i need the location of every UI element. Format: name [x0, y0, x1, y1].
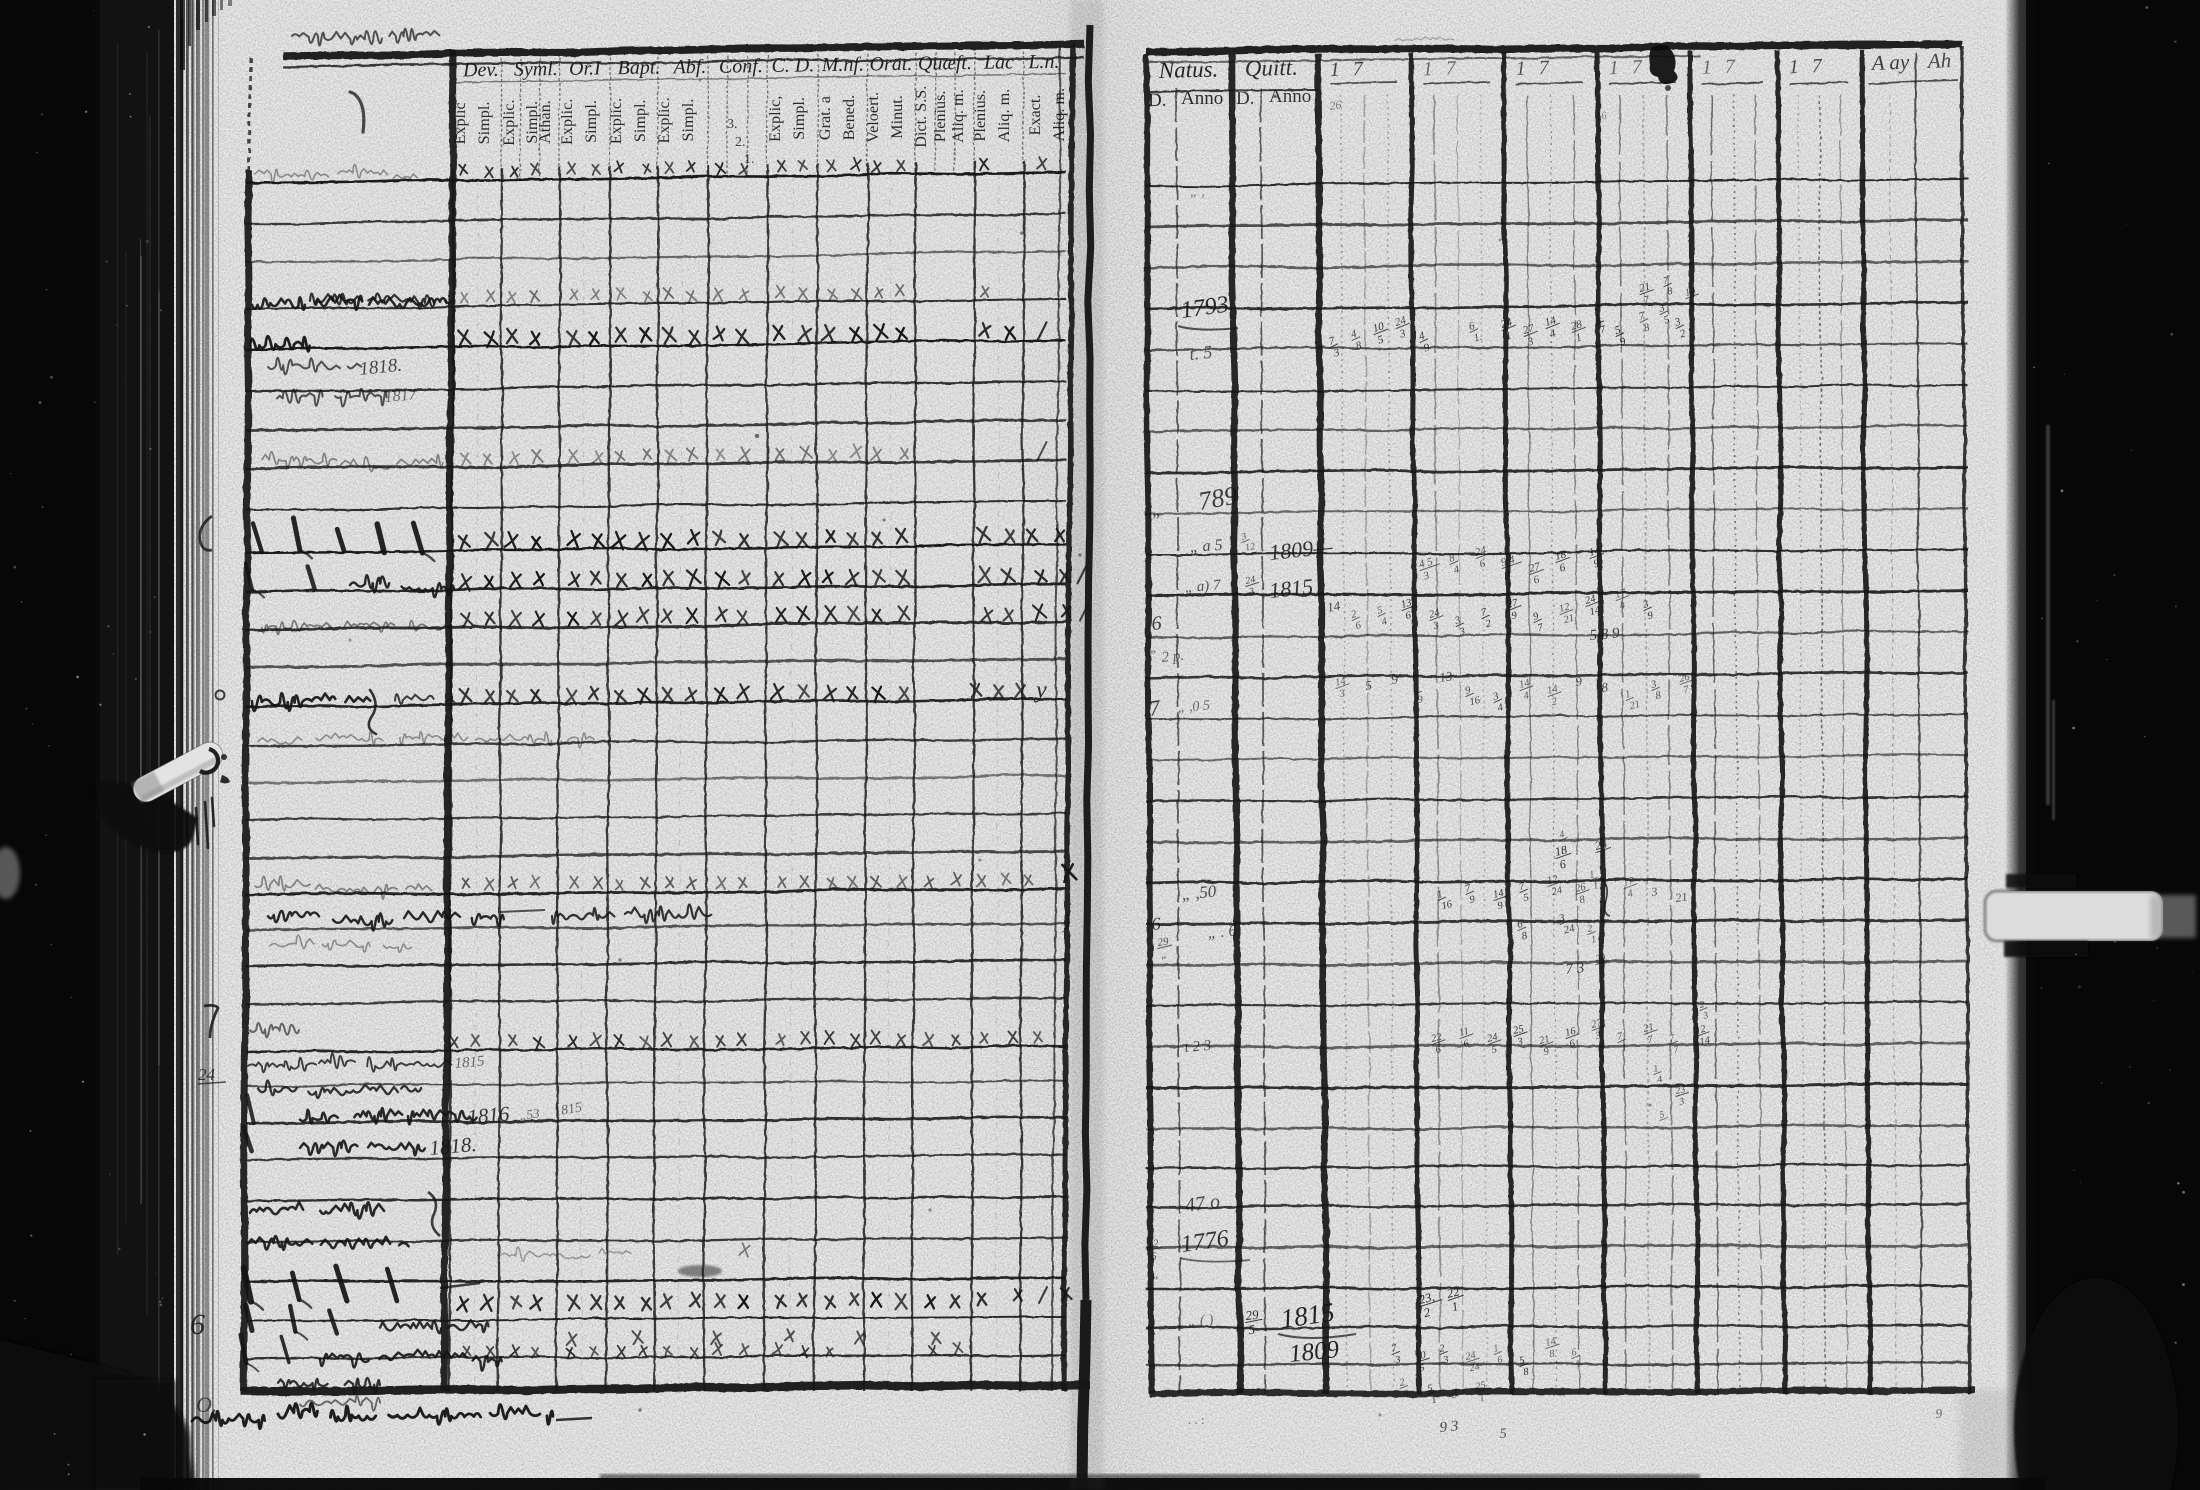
svg-text:Explic.: Explic.	[558, 99, 576, 145]
svg-text:5 8 9: 5 8 9	[1589, 625, 1621, 644]
svg-text:Abf.: Abf.	[671, 56, 706, 78]
svg-text:Quæft.: Quæft.	[918, 52, 972, 75]
svg-text:O.: O.	[196, 1392, 217, 1417]
svg-text:Explic.: Explic.	[655, 97, 673, 143]
svg-text:1815: 1815	[1268, 574, 1314, 603]
svg-text:„ a 5: „ a 5	[1189, 537, 1223, 556]
svg-text:Simpl.: Simpl.	[582, 100, 600, 143]
svg-text:„ ,: „ ,	[1190, 185, 1205, 200]
svg-text:Simpl.: Simpl.	[679, 99, 697, 142]
svg-text:13: 13	[1438, 668, 1453, 685]
svg-text:Quitt.: Quitt.	[1244, 55, 1298, 81]
svg-text:Bened.: Bened.	[840, 95, 858, 140]
svg-text:A ay: A ay	[1869, 50, 1910, 75]
svg-text:Minut.: Minut.	[888, 95, 906, 139]
svg-text:Bapt.: Bapt.	[617, 57, 660, 80]
svg-text:1 7: 1 7	[1515, 57, 1553, 80]
svg-text:1817: 1817	[384, 386, 418, 406]
svg-text:Anno: Anno	[1181, 88, 1223, 109]
svg-text:Veloert.: Veloert.	[864, 92, 882, 143]
svg-text:t. 5: t. 5	[1188, 342, 1213, 364]
svg-text:D.: D.	[1236, 88, 1254, 109]
svg-text:„ . 6: „ . 6	[1207, 923, 1237, 942]
svg-text:Dev.: Dev.	[462, 59, 499, 82]
svg-text:Plenius.: Plenius.	[971, 90, 989, 142]
svg-text:21: 21	[1674, 889, 1688, 905]
svg-text:1818.: 1818.	[358, 355, 403, 380]
svg-text:1809: 1809	[1288, 1336, 1341, 1368]
svg-text:2.: 2.	[735, 135, 746, 150]
svg-text:6: 6	[1151, 612, 1163, 635]
svg-text:1 7: 1 7	[1608, 56, 1646, 79]
svg-text:C. D.: C. D.	[771, 54, 814, 77]
svg-text:Lac: Lac	[983, 51, 1014, 73]
svg-text:D.: D.	[1148, 90, 1166, 111]
svg-text:16: 16	[1595, 110, 1608, 123]
svg-text:Simpl.: Simpl.	[475, 102, 493, 145]
svg-text:Aliq. m.: Aliq. m.	[1050, 88, 1068, 142]
svg-text:): )	[1061, 908, 1070, 933]
svg-text:„ ,50: „ ,50	[1180, 881, 1217, 904]
svg-text:„ ( ): „ ( )	[1187, 1312, 1214, 1330]
svg-text:3.: 3.	[727, 117, 738, 132]
svg-text:t 2 3: t 2 3	[1184, 1038, 1212, 1056]
svg-text:Grat. a: Grat. a	[816, 96, 834, 140]
svg-text:Or.I: Or.I	[569, 57, 602, 79]
svg-text:Syml.: Syml.	[514, 58, 558, 81]
svg-text:Explic,: Explic,	[766, 96, 784, 142]
svg-text:1816: 1816	[466, 1101, 510, 1129]
svg-text:9 3: 9 3	[1439, 1418, 1459, 1436]
svg-text:1818.: 1818.	[428, 1132, 477, 1160]
svg-text:5: 5	[1499, 1426, 1507, 1442]
svg-text:2 p.: 2 p.	[1161, 648, 1185, 666]
svg-text:26: 26	[1328, 97, 1342, 113]
svg-text:6: 6	[190, 1308, 205, 1341]
svg-text:Dict. S.S.: Dict. S.S.	[912, 86, 930, 148]
svg-text:1815: 1815	[454, 1053, 486, 1072]
svg-text:1 7: 1 7	[1788, 55, 1826, 78]
svg-text:Explic: Explic	[451, 102, 469, 144]
svg-text:7 3: 7 3	[1565, 960, 1585, 978]
svg-text:Aliq. m.: Aliq. m.	[995, 89, 1013, 143]
svg-text:24: 24	[198, 1065, 216, 1084]
svg-text:„: „	[1152, 1267, 1160, 1282]
svg-text:Aliq. m.: Aliq. m.	[949, 89, 967, 143]
svg-text:6: 6	[1151, 913, 1161, 934]
svg-text:1.: 1.	[744, 152, 755, 167]
svg-text:„: „	[1150, 641, 1158, 656]
svg-text:Exact.: Exact.	[1026, 95, 1044, 136]
svg-text:„53: „53	[518, 1105, 541, 1123]
svg-text:Ah: Ah	[1925, 48, 1951, 73]
svg-text:Simpl.: Simpl.	[631, 99, 649, 142]
svg-text:1 7: 1 7	[1329, 58, 1367, 81]
svg-text:Natus.: Natus.	[1157, 56, 1218, 83]
svg-text:Explic.: Explic.	[500, 100, 518, 146]
svg-text:1 7: 1 7	[1422, 57, 1460, 80]
svg-text:L.n.: L.n.	[1027, 51, 1059, 73]
svg-text:Simpl.: Simpl.	[790, 97, 808, 140]
svg-text:„ ,0 5: „ ,0 5	[1177, 698, 1210, 716]
svg-text:„ a) 7: „ a) 7	[1184, 577, 1222, 596]
svg-text:„: „	[1152, 500, 1162, 520]
svg-text:. . :: . . :	[1188, 1412, 1205, 1427]
svg-text:1 7: 1 7	[1701, 56, 1739, 79]
svg-text:Plenius.: Plenius.	[931, 91, 949, 143]
svg-text:Athan.: Athan.	[536, 100, 554, 144]
svg-text:Orat.: Orat.	[869, 53, 912, 76]
svg-text:Explic.: Explic.	[607, 98, 625, 144]
svg-text:y: y	[1034, 678, 1047, 704]
svg-text:M.nf.: M.nf.	[821, 54, 865, 77]
svg-text:Conf.: Conf.	[719, 55, 763, 78]
